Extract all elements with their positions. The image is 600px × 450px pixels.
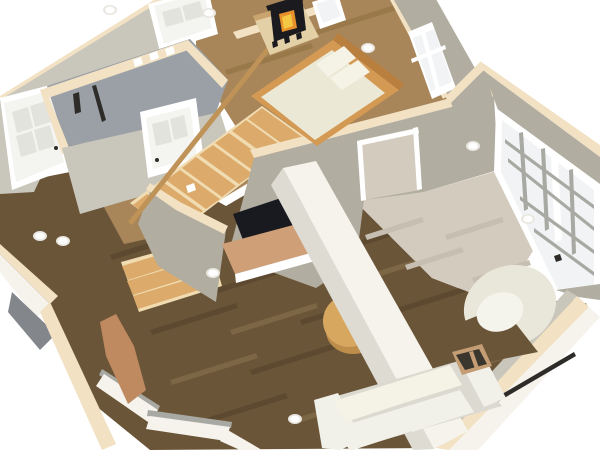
light-disc	[468, 143, 478, 150]
ceiling-light	[466, 141, 480, 151]
ceiling-light	[56, 236, 70, 246]
home-3d-render	[0, 0, 600, 450]
ceiling-light	[103, 5, 117, 15]
ceiling-light	[288, 414, 302, 424]
light-disc	[523, 216, 533, 223]
ceiling-light	[361, 43, 375, 53]
light-disc	[105, 7, 115, 14]
ceiling-light	[33, 231, 47, 241]
light-disc	[363, 45, 373, 52]
door-knob	[54, 146, 58, 150]
door-knob	[155, 158, 159, 162]
light-disc	[290, 416, 300, 423]
light-disc	[35, 233, 45, 240]
light-disc	[58, 238, 68, 245]
light-disc	[204, 10, 214, 17]
ceiling-light	[206, 268, 220, 278]
light-disc	[208, 270, 218, 277]
ceiling-light	[202, 8, 216, 18]
ceiling-light	[521, 214, 535, 224]
